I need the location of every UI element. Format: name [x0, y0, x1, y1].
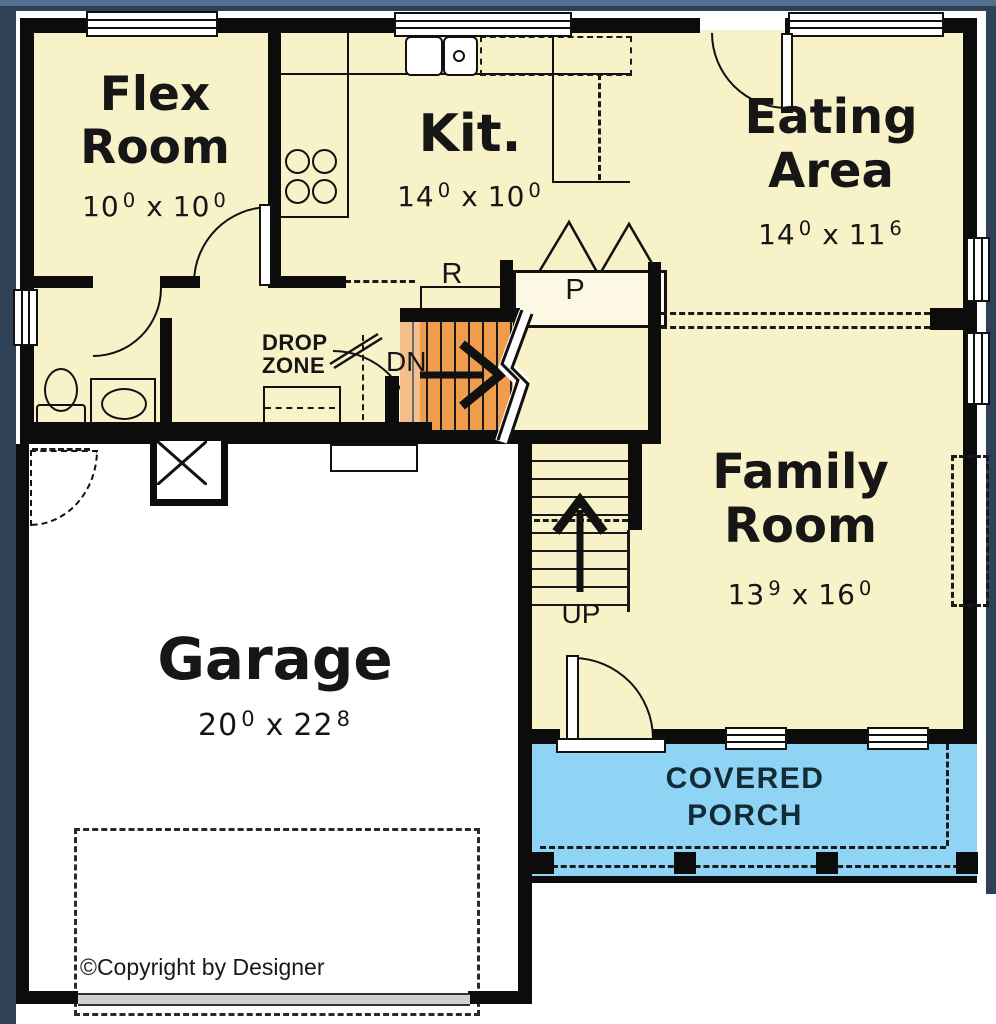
porch-roofline-dashed-h [540, 846, 946, 849]
stairs-up-arrow-icon [548, 492, 612, 600]
eating-family-divider-dashed-1 [661, 312, 930, 315]
optional-fireplace-dashed [951, 455, 989, 607]
drop-zone-bench-dashed [265, 407, 335, 409]
stair-break-line-icon [492, 310, 540, 444]
wall-family-left [648, 262, 661, 434]
eating-area-label-line1: Eating [700, 90, 962, 144]
porch-bottom-rail [532, 876, 977, 883]
drop-zone-label-line1: DROP [262, 331, 328, 354]
covered-porch-label-line2: PORCH [570, 797, 920, 834]
kitchen-dimensions: 140x100 [350, 180, 590, 213]
eating-area-top-window [788, 12, 944, 37]
family-room-label: Family Room [668, 445, 933, 553]
porch-door-sill [556, 738, 666, 753]
porch-post-2 [674, 852, 696, 874]
kitchen-label: Kit. [365, 106, 575, 162]
flex-room-label-line1: Flex [35, 68, 275, 121]
kitchen-window [394, 12, 572, 37]
upper-cabinet-dashed [480, 36, 632, 76]
wall-left [20, 18, 34, 430]
porch-door-leaf [566, 655, 579, 741]
wall-powder-right [160, 318, 172, 434]
stove-burner-4 [312, 179, 337, 204]
upper-cabinet-dashed-line [598, 74, 601, 180]
x-marker-icon [157, 441, 207, 485]
copyright-text: ©Copyright by Designer [80, 954, 325, 981]
kitchen-label-line1: Kit. [365, 106, 575, 162]
garage-label-line1: Garage [90, 628, 460, 690]
garage-label: Garage [90, 628, 460, 690]
wall-stair-left-stub [385, 376, 399, 432]
porch-post-3 [816, 852, 838, 874]
wall-garage-left [16, 444, 29, 1004]
kitchen-faucet [453, 50, 465, 62]
family-room-dimensions: 139x160 [668, 578, 933, 611]
refrigerator-label: R [432, 258, 472, 291]
garage-service-door-leaf [32, 448, 90, 451]
kitchen-open-edge-dashed [345, 280, 415, 283]
porch-roofline-dashed-v [946, 744, 949, 846]
stairs-up-label: UP [551, 598, 611, 630]
porch-outer-edge-dashed [534, 865, 977, 868]
garage-driveway-outline-dashed [74, 828, 480, 1016]
wall-eating-family-stub [930, 308, 963, 330]
eating-area-dimensions: 140x116 [700, 218, 962, 251]
wall-flex-bottom-a [20, 276, 93, 288]
drop-zone-label-line2: ZONE [262, 354, 328, 377]
wall-garage-right [518, 430, 532, 1004]
wall-family-bottom-d [925, 729, 977, 744]
family-room-right-window [966, 332, 990, 405]
family-room-porch-window-2 [867, 727, 929, 750]
covered-porch-label-line1: COVERED [570, 760, 920, 797]
covered-porch-label: COVERED PORCH [570, 760, 920, 834]
stove-burner-2 [285, 179, 310, 204]
family-room-porch-window-1 [725, 727, 787, 750]
wall-garage-bottom-left [16, 991, 78, 1004]
flex-room-dimensions: 100x100 [35, 190, 275, 223]
family-room-label-line2: Room [668, 499, 933, 553]
garage-door [78, 993, 470, 1006]
wall-family-bottom-c [783, 729, 867, 744]
eating-area-right-window [966, 237, 990, 302]
wall-kitchen-bottom-stub [268, 276, 346, 288]
flex-room-label-line2: Room [35, 121, 275, 174]
porch-post-4 [956, 852, 978, 874]
pantry-bifold-doors-icon [537, 216, 661, 274]
eating-family-divider-dashed-2 [661, 326, 930, 329]
garage-step [330, 444, 418, 472]
frame-right [986, 0, 996, 894]
wall-upstairs-right [628, 434, 642, 530]
frame-top-highlight [0, 0, 996, 6]
garage-dimensions: 200x228 [90, 708, 460, 743]
wall-flex-bottom-b [160, 276, 200, 288]
stairs-down-label: DN [386, 346, 426, 378]
frame-left [0, 0, 16, 1024]
floor-plan: Flex Room 100x100 Kit. 140x100 Eating Ar… [0, 0, 996, 1024]
porch-post-1 [532, 852, 554, 874]
family-room-label-line1: Family [668, 445, 933, 499]
stove-burner-1 [285, 149, 310, 174]
powder-room-window [13, 289, 38, 346]
eating-area-label: Eating Area [700, 90, 962, 198]
flex-room-window [86, 11, 218, 37]
eating-area-label-line2: Area [700, 144, 962, 198]
stove-burner-3 [312, 149, 337, 174]
chase-x-box [150, 434, 228, 506]
kitchen-sink-basin-left [405, 36, 443, 76]
flex-room-label: Flex Room [35, 68, 275, 174]
pantry-label: P [555, 274, 595, 307]
drop-zone-label: DROP ZONE [262, 331, 328, 377]
vanity-sink [101, 388, 147, 420]
